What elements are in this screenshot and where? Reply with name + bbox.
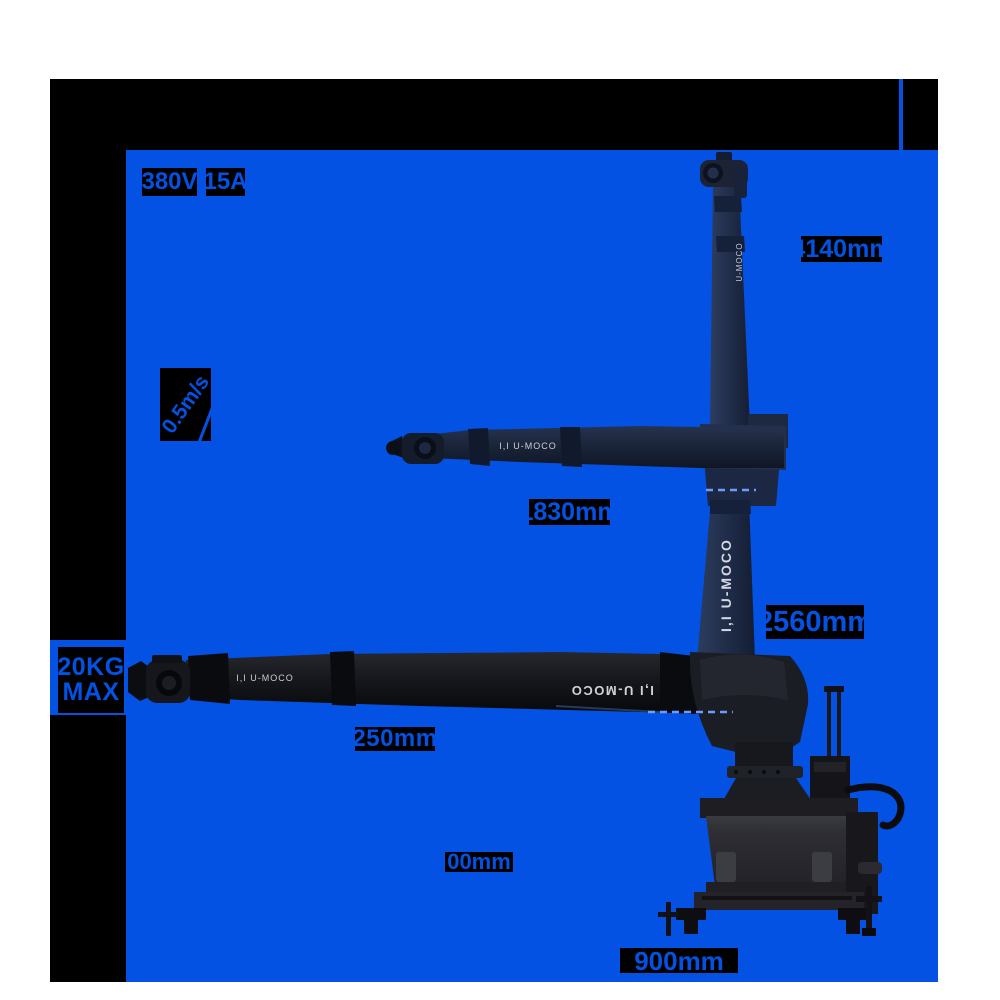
speed-badge: 0.5m/s	[160, 368, 211, 441]
top-band-blue-slit	[899, 79, 903, 150]
base-length-badge: 900mm	[620, 948, 738, 973]
lower-arm-length-value: 250mm	[355, 727, 435, 751]
mast-height-value: 2560mm	[766, 608, 864, 637]
left-black-column	[50, 79, 126, 982]
voltage-value: 380V	[142, 170, 197, 194]
lower-arm-length-badge: 250mm	[355, 727, 435, 751]
total-height-badge: 4140mm	[801, 236, 882, 262]
mast-height-badge: 2560mm	[766, 605, 864, 639]
top-black-band	[50, 79, 938, 150]
spec-sheet-canvas: U-MOCO I,I U-MOCO	[0, 0, 1000, 1000]
total-height-value: 4140mm	[801, 237, 882, 262]
payload-line2: MAX	[62, 680, 119, 705]
blue-panel	[126, 150, 938, 982]
arm-reach-value: 1830mm	[529, 500, 610, 525]
payload-line1: 20KG	[58, 655, 124, 680]
arm-reach-badge: 1830mm	[529, 499, 610, 525]
voltage-badge: 380V	[142, 168, 197, 196]
current-value: 15A	[206, 170, 245, 194]
base-height-badge: 00mm	[445, 852, 513, 872]
base-length-value: 900mm	[634, 948, 724, 973]
base-height-value: 00mm	[447, 852, 511, 872]
current-badge: 15A	[206, 168, 245, 196]
payload-badge: 20KG MAX	[58, 647, 124, 713]
